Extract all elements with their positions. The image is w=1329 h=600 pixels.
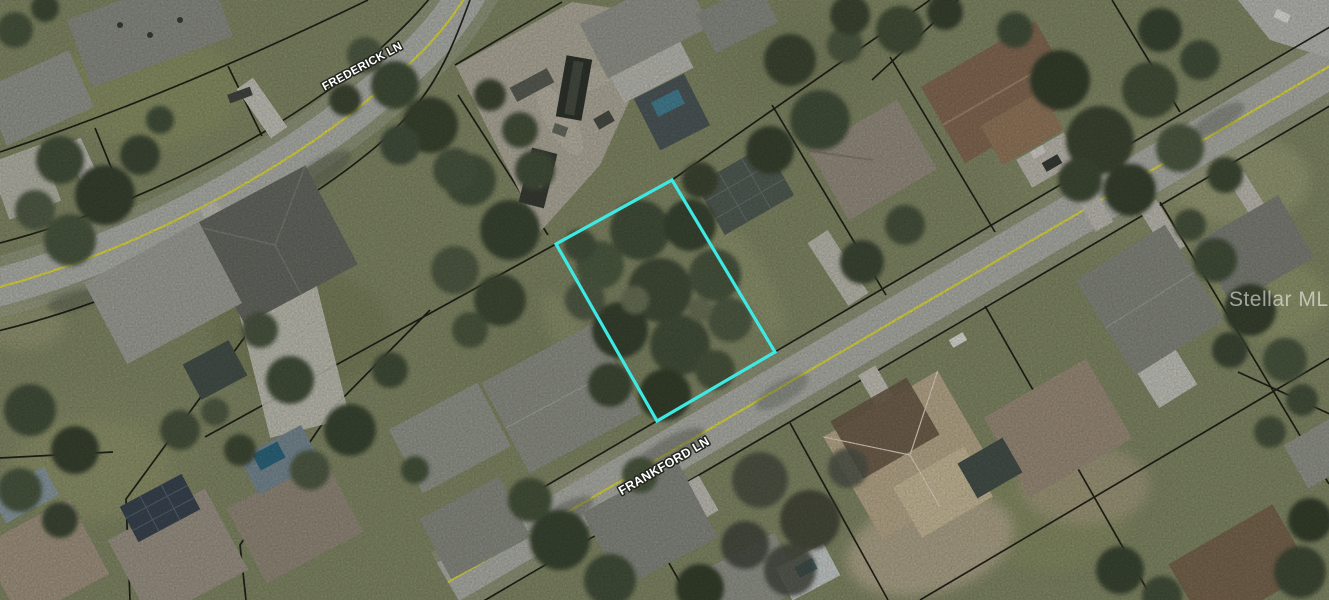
- mls-listing-aerial-photo: FREDERICK LN FRANKFORD LN Stellar MLS: [0, 0, 1329, 600]
- aerial-map: FREDERICK LN FRANKFORD LN Stellar MLS: [0, 0, 1329, 600]
- stellar-mls-watermark: Stellar MLS: [1229, 288, 1329, 311]
- photo-grain-texture: [0, 0, 1329, 600]
